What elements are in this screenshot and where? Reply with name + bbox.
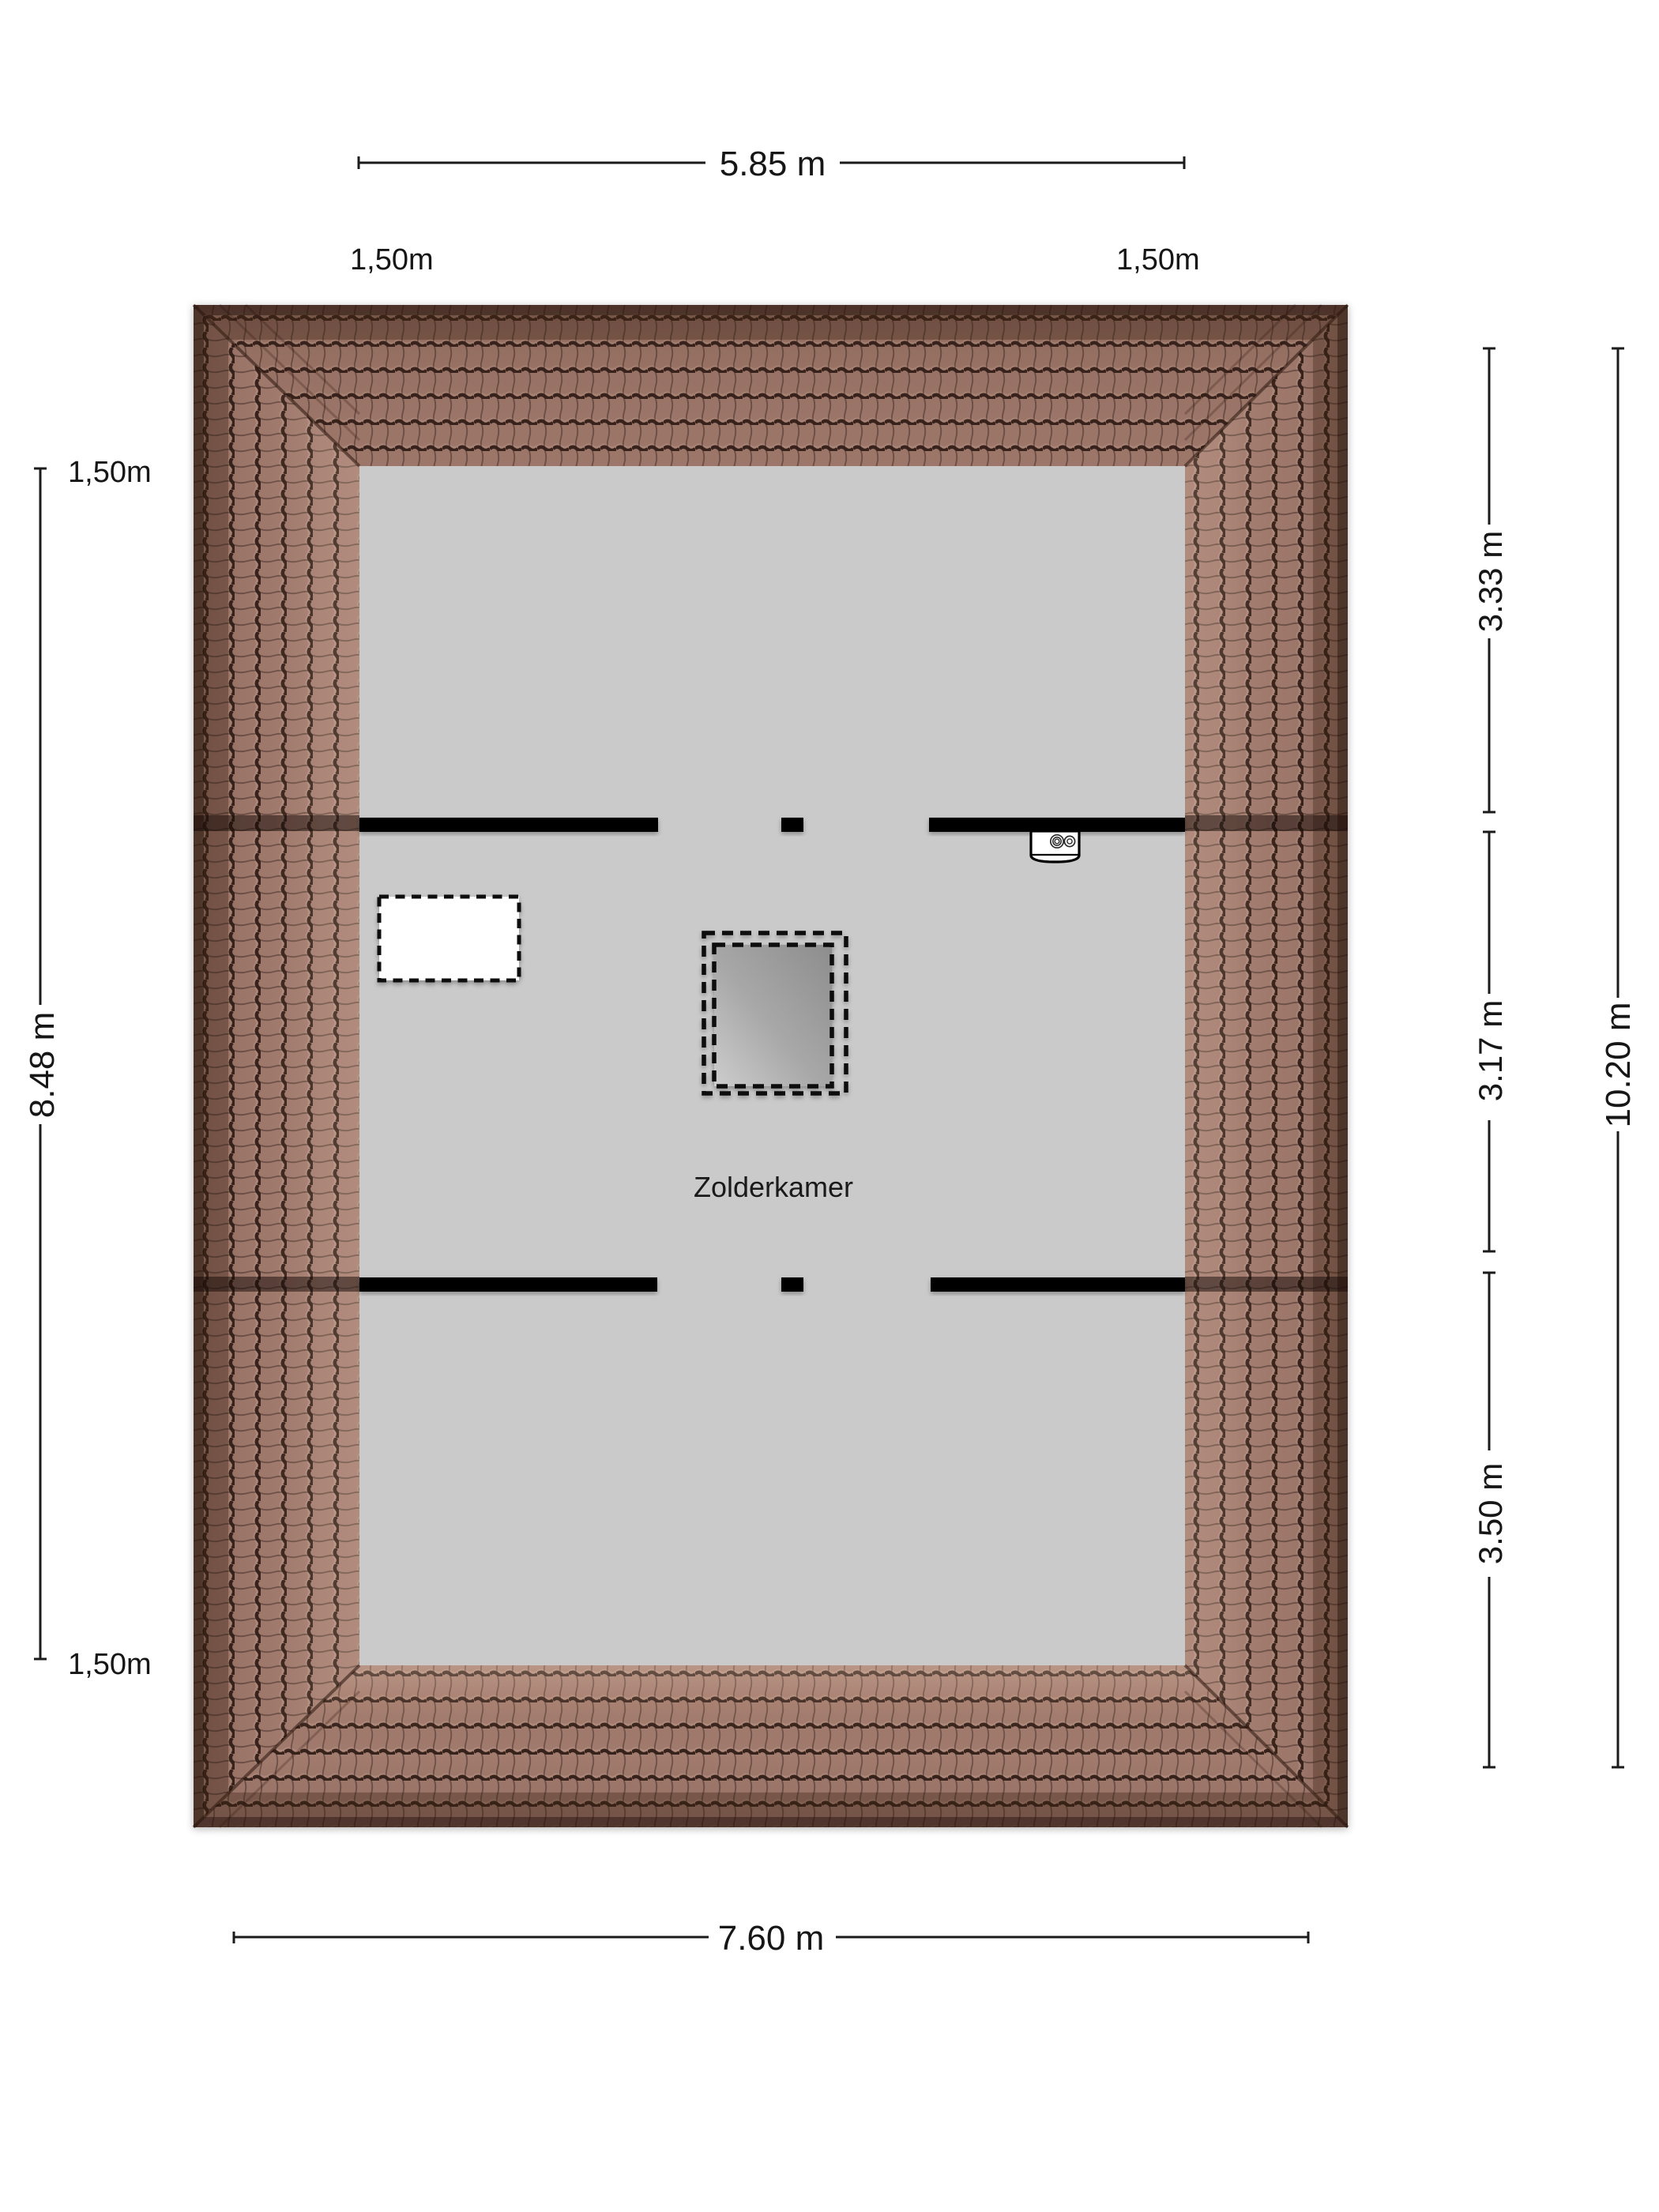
svg-text:Zolderkamer: Zolderkamer bbox=[694, 1171, 853, 1203]
svg-text:1,50m: 1,50m bbox=[1116, 243, 1200, 276]
svg-text:5.85 m: 5.85 m bbox=[720, 145, 826, 183]
svg-text:1,50m: 1,50m bbox=[68, 456, 152, 489]
svg-text:8.48 m: 8.48 m bbox=[23, 1012, 62, 1119]
svg-text:3.17 m: 3.17 m bbox=[1472, 1000, 1509, 1101]
svg-text:1,50m: 1,50m bbox=[350, 243, 434, 276]
svg-text:10.20 m: 10.20 m bbox=[1599, 1003, 1638, 1128]
svg-text:7.60 m: 7.60 m bbox=[718, 1919, 825, 1958]
svg-text:3.50 m: 3.50 m bbox=[1472, 1463, 1509, 1564]
svg-text:3.33 m: 3.33 m bbox=[1472, 531, 1509, 632]
svg-text:1,50m: 1,50m bbox=[68, 1648, 152, 1681]
